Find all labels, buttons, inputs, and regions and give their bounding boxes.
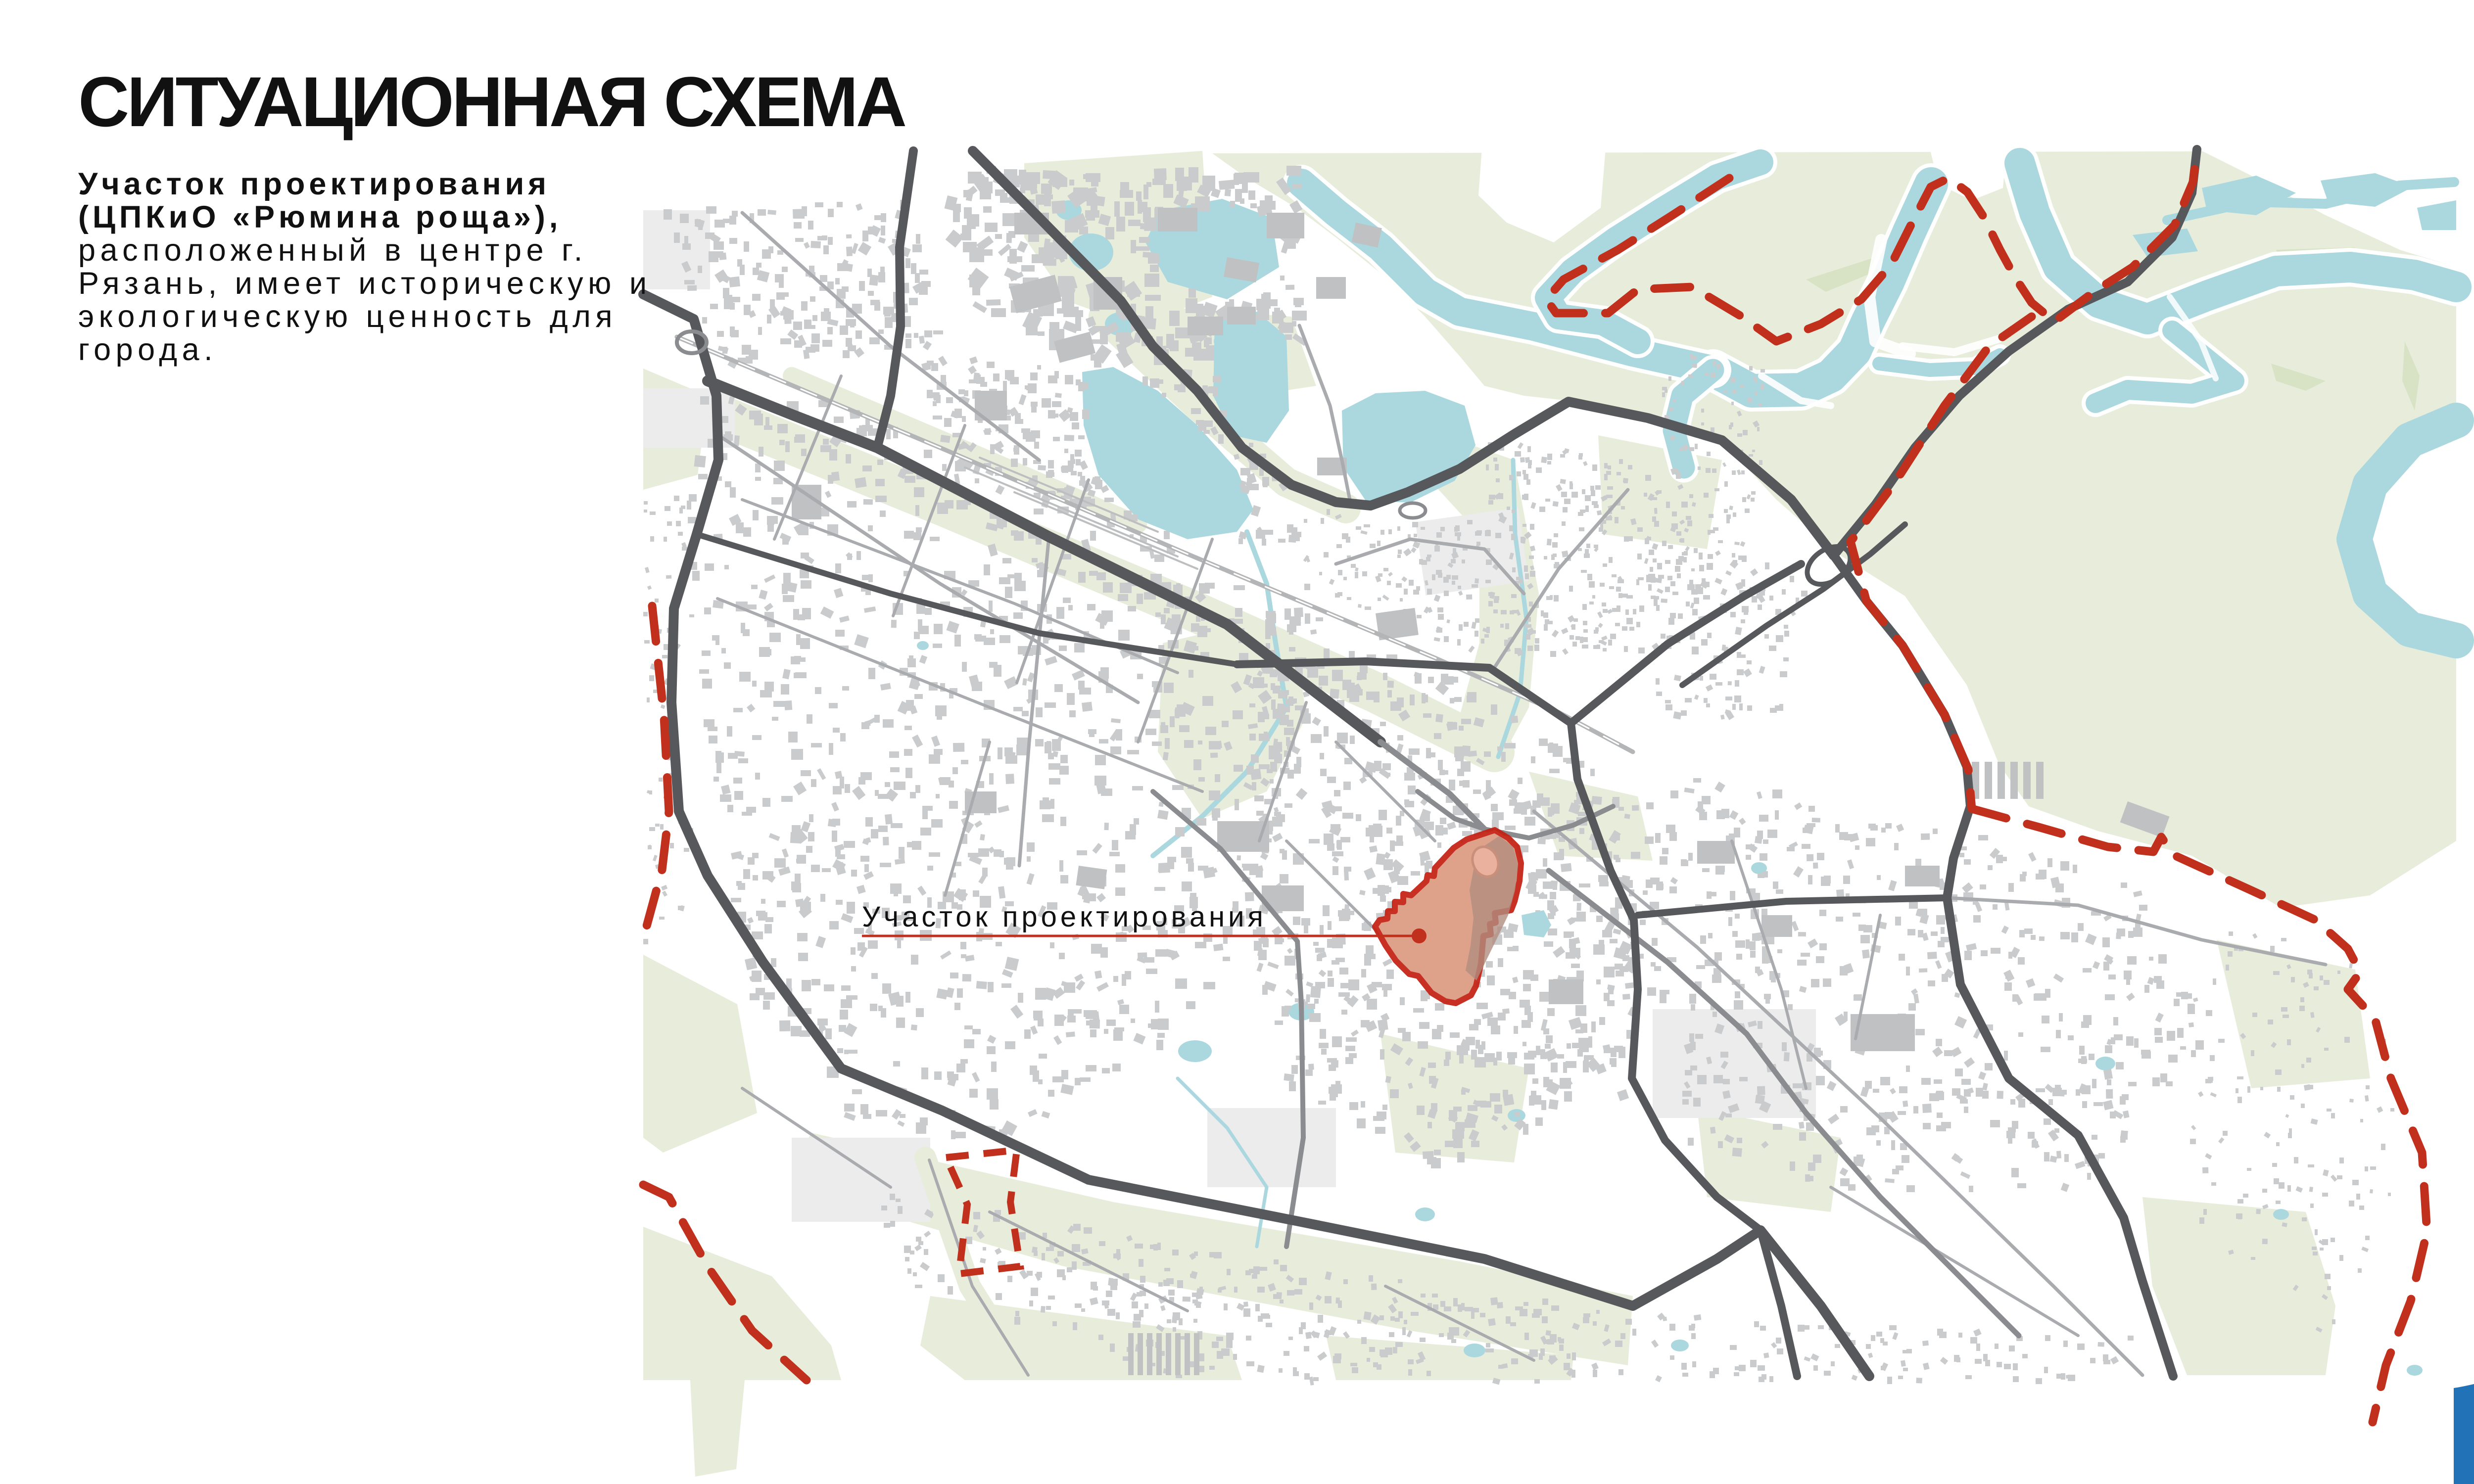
svg-text:Рязань, имеет историческую и: Рязань, имеет историческую и bbox=[78, 266, 652, 301]
svg-text:(ЦПКиО «Рюмина роща»),: (ЦПКиО «Рюмина роща»), bbox=[78, 200, 562, 234]
svg-text:СИТУАЦИОННАЯ СХЕМА: СИТУАЦИОННАЯ СХЕМА bbox=[78, 63, 905, 141]
svg-text:расположенный в центре г.: расположенный в центре г. bbox=[78, 233, 587, 268]
svg-text:Участок проектирования: Участок проектирования bbox=[862, 901, 1267, 933]
svg-text:города.: города. bbox=[78, 332, 217, 367]
svg-text:экологическую ценность для: экологическую ценность для bbox=[78, 299, 617, 334]
svg-text:Участок проектирования: Участок проектирования bbox=[78, 167, 550, 201]
